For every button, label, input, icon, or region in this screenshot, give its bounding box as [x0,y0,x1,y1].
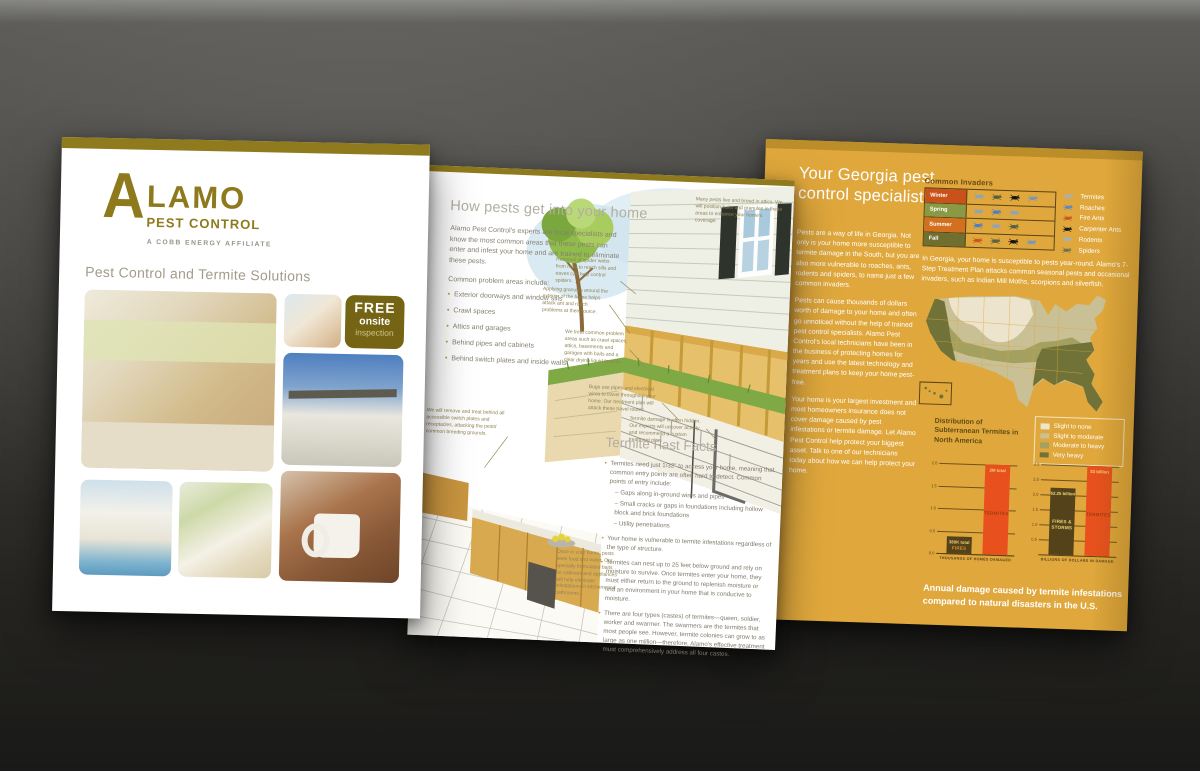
olive-top-bar [427,165,795,186]
swatch-moderate-heavy [1040,442,1049,448]
brochure-cover-page: A LAMO PEST CONTROL A COBB ENERGY AFFILI… [52,137,430,619]
fact-item: • Termites need just 1/32" to access you… [602,460,775,536]
bar-value-label: 380K total [949,539,970,545]
logo-subtitle: PEST CONTROL [146,215,260,232]
y-tick-label: 0.0 [923,550,934,555]
bug-icon [1007,238,1021,245]
fruit-bowl [547,538,575,548]
bullet-icon: • [599,558,603,603]
bar-termites: 2M totalTERMITES [982,464,1010,555]
swatch-very-heavy [1040,452,1049,458]
y-tick-label: 1.5 [1027,506,1038,511]
paragraph: Pests are a way of life in Georgia. Not … [795,228,923,293]
countertop [471,509,603,553]
termite-icon [1062,193,1075,200]
season-label: Summer [924,217,966,232]
map-zone-very-heavy-southeast [1032,340,1106,413]
dollars-damage-chart: 0.51.01.52.02.53.0$2.25 billionFIRES & S… [1024,464,1123,564]
fire-ant-icon [1061,215,1074,222]
gold-top-band [766,139,1143,160]
seasonal-invaders-table: Winter Spring Summer Fall [923,187,1057,250]
bug-icon [971,237,985,244]
bug-icon [1026,195,1040,202]
photo-grid: FREE onsite inspection [85,290,405,297]
bug-icon [1025,238,1039,245]
photo-house-exterior [281,353,403,467]
fact-item: •There are four types (castes) of termit… [597,609,769,661]
homes-damaged-chart: 0.00.51.01.52.0380K totalFIRES2M totalTE… [922,462,1021,562]
dishwasher [527,562,557,609]
season-bug-icons [966,233,1054,249]
map-title: Distribution of Subterranean Termites in… [934,417,1029,448]
soil [545,369,624,465]
bar-fires-storms: $2.25 billionFIRES & STORMS [1048,487,1075,555]
bullet-icon: • [445,338,448,348]
y-tick-label: 2.5 [1028,476,1039,481]
y-tick-label: 1.0 [925,505,936,510]
portfolio-canvas: { "page1": { "logo": { "initial": "A", "… [0,0,1200,771]
olive-top-bar [62,137,430,156]
bug-icon [972,193,986,200]
common-invaders-title: Common Invaders [925,176,994,187]
bullet-icon: • [446,322,449,332]
photo-parents-daughter [284,294,342,348]
bug-icon [989,237,1003,244]
photo-detail [289,389,397,399]
chart-plot-area: 0.51.01.52.02.53.0$2.25 billionFIRES & S… [1038,464,1119,558]
paragraph: Pests can cause thousands of dollars wor… [792,296,921,392]
photo-detail [83,320,276,364]
season-label: Fall [924,232,966,247]
carpenter-ant-icon [1061,225,1074,232]
bug-icon [971,222,985,229]
logo-word: LAMO [147,181,261,214]
free-inspection-badge: FREE onsite inspection [345,295,405,349]
hawaii-inset [919,382,951,405]
bar-value-label: $2.25 billion [1051,490,1076,496]
paragraph: Your home is your largest investment and… [789,395,918,481]
swatch-slight-none [1041,423,1050,429]
bug-icon [972,208,986,215]
annotation-pipes-wires: Bugs use pipes and electrical wires to t… [588,384,661,415]
annotation-attic: Many pests live and breed in attics. We … [695,196,784,227]
bullet-icon: • [602,460,607,529]
badge-free: FREE [345,300,404,316]
bar-name-label: FIRES & STORMS [1049,519,1074,532]
annotation-granules: Applying granules around the exterior of… [542,286,609,316]
map-legend: Slight to none Slight to moderate Modera… [1033,416,1125,467]
bullet-icon: • [447,290,450,300]
termite-facts-list: • Termites need just 1/32" to access you… [596,460,774,668]
page-title: Your Georgia pest control specialists [798,164,935,208]
body-copy: Pests are a way of life in Georgia. Not … [789,228,923,487]
bullet-icon: • [445,354,448,364]
bar-termites: $3 billionTERMITES [1084,466,1112,557]
chart-plot-area: 0.00.51.01.52.0380K totalFIRES2M totalTE… [936,463,1017,557]
bullet-icon: • [447,306,450,316]
annotation-spider-webs: Removal of spider webs from hard to reac… [555,256,620,286]
fact-item: •Your home is vulnerable to termite infe… [601,535,772,560]
legend-item: Very heavy [1040,450,1118,462]
logo-initial: A [102,166,144,226]
bug-icon [990,194,1004,201]
interior-spread-page: How pests get into your home Alamo Pest … [407,165,794,650]
y-tick-label: 1.0 [1026,521,1037,526]
charts-caption: Annual damage caused by termite infestat… [923,581,1126,614]
fact-item: •Termites can nest up to 25 feet below g… [599,558,771,610]
swatch-slight-moderate [1040,433,1049,439]
bullet-icon: • [597,609,601,654]
annotation-switch-plates: We will remove and treat behind all acce… [426,407,507,438]
badge-inspection: inspection [345,327,404,338]
bug-icon [1008,209,1022,216]
bar-name-label: TERMITES [984,510,1009,517]
season-label: Spring [925,203,967,218]
bug-icon [1007,223,1021,230]
spread-heading: How pests get into your home [450,198,648,222]
georgia-specialists-page: Your Georgia pest control specialists Pe… [750,139,1143,631]
invaders-legend: Termites Roaches Fire Ants Carpenter Ant… [1060,191,1122,258]
photo-detail [81,421,274,471]
legend-item: Spiders [1060,245,1120,258]
logo-tagline: A COBB ENERGY AFFILIATE [147,239,272,249]
annotation-treatment: We treat common problem areas such as cr… [564,329,629,366]
bug-icon [990,208,1004,215]
us-map-svg [915,284,1129,421]
photo-woman-mug [279,471,401,583]
season-label: Winter [925,188,967,203]
bug-icon [989,223,1003,230]
rodent-icon [1061,236,1074,243]
bar-value-label: $3 billion [1090,469,1109,475]
bar-name-label: TERMITES [1086,512,1111,519]
cover-heading: Pest Control and Termite Solutions [85,264,311,285]
alamo-logo: A LAMO PEST CONTROL [100,166,261,232]
y-tick-label: 2.0 [926,460,937,465]
photo-woman-dog [178,482,273,579]
roach-icon [1062,204,1075,211]
bar-value-label: 2M total [989,468,1005,474]
spider-icon [1060,247,1073,254]
photo-detail [313,513,360,558]
photo-kitchen-family [81,290,277,472]
bullet-icon: • [601,535,604,553]
y-tick-label: 1.5 [926,482,937,487]
bug-icon [1008,194,1022,201]
y-tick-label: 3.0 [1028,461,1039,466]
y-tick-label: 0.5 [1026,536,1037,541]
y-tick-label: 2.0 [1027,491,1038,496]
chart-x-axis-label: BILLIONS OF DOLLARS IN DAMAGE [1038,557,1116,564]
us-termite-map [915,284,1129,421]
chart-x-axis-label: THOUSANDS OF HOMES DAMAGED [936,556,1014,563]
bar-name-label: FIRES [952,546,967,552]
photo-house-pool [79,479,173,576]
table-row: Fall [924,232,1054,250]
y-tick-label: 0.5 [924,527,935,532]
bar-fires: 380K totalFIRES [946,536,972,554]
